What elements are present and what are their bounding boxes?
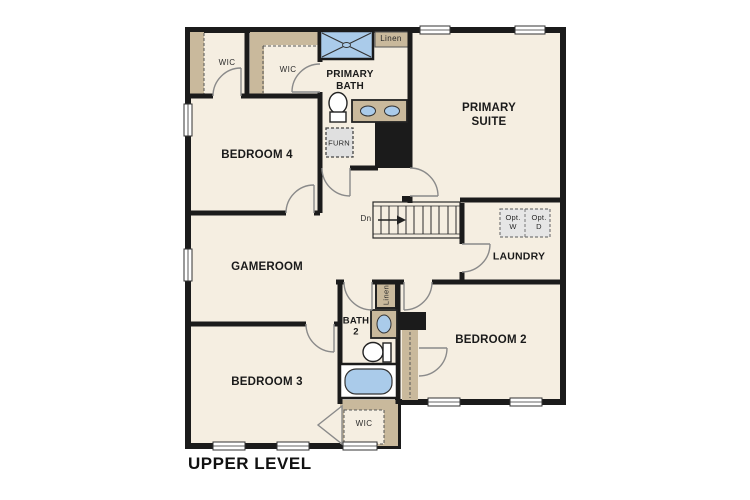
linen-top-label: Linen [380, 34, 402, 44]
primary-sink-left [361, 106, 376, 116]
wic-bottom-label: WIC [356, 419, 373, 429]
opt-dryer-label: Opt. D [532, 213, 547, 231]
shower-drain [343, 43, 351, 48]
chase-primary-bath [375, 120, 408, 168]
wic-left-label: WIC [219, 58, 236, 68]
wic-left-shelf [190, 32, 204, 95]
bath2-sink [377, 315, 391, 333]
primary-toilet-tank [330, 112, 346, 122]
furnace-label: FURN [328, 139, 350, 148]
stairs-down-label: Dn [360, 214, 371, 224]
primary-suite-label: PRIMARY SUITE [462, 102, 516, 130]
bath2-toilet-bowl [363, 343, 383, 362]
gameroom-label: GAMEROOM [231, 261, 303, 275]
floor-plan-drawing [0, 0, 750, 500]
bath2-toilet-tank [383, 343, 391, 362]
plan-title: UPPER LEVEL [188, 454, 312, 474]
bedroom-4-label: BEDROOM 4 [221, 149, 292, 163]
linen-hall-label: Linen [382, 285, 391, 305]
opt-washer-label: Opt. W [506, 213, 521, 231]
primary-sink-right [385, 106, 400, 116]
bath-2-label: BATH 2 [343, 316, 369, 339]
wic-top-label: WIC [280, 65, 297, 75]
primary-bath-label: PRIMARY BATH [326, 69, 373, 93]
laundry-label: LAUNDRY [493, 251, 545, 264]
floor-plan-canvas: PRIMARY SUITE PRIMARY BATH BEDROOM 4 GAM… [0, 0, 750, 500]
bath2-tub [345, 369, 392, 394]
primary-toilet-bowl [329, 93, 347, 114]
bedroom-3-label: BEDROOM 3 [231, 376, 302, 390]
bedroom-2-label: BEDROOM 2 [455, 334, 526, 348]
chase-bedroom2 [400, 312, 426, 330]
